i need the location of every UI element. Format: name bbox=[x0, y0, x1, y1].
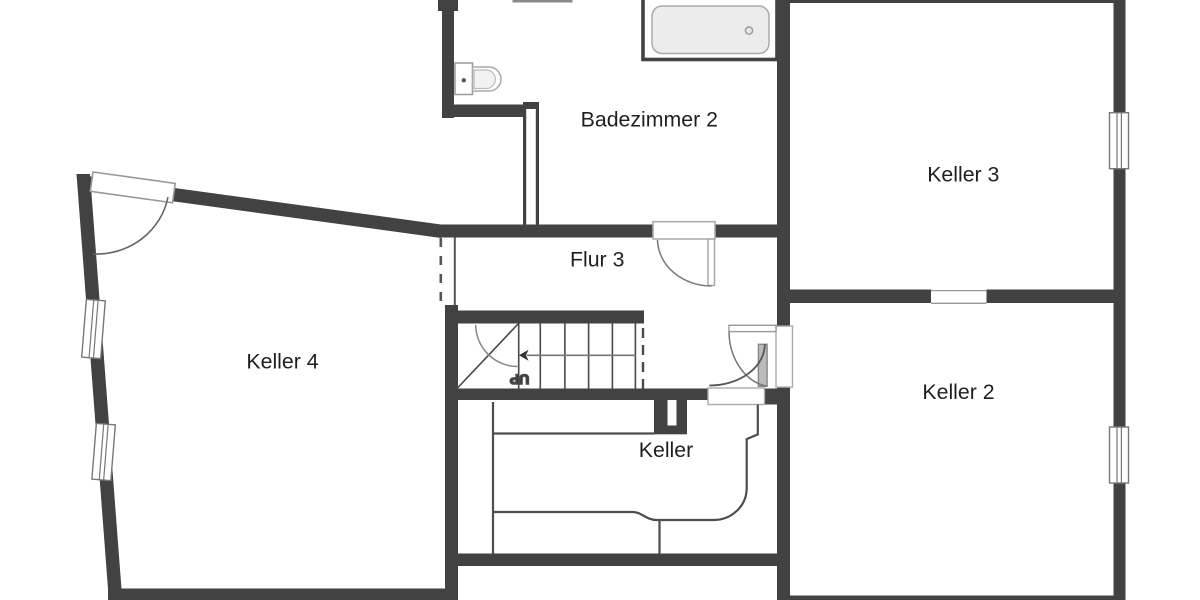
svg-text:UP: UP bbox=[510, 372, 529, 388]
svg-text:Keller: Keller bbox=[639, 438, 693, 462]
svg-text:Keller 3: Keller 3 bbox=[927, 163, 999, 187]
svg-text:Flur 3: Flur 3 bbox=[570, 248, 624, 272]
svg-text:Keller 2: Keller 2 bbox=[922, 380, 994, 404]
svg-text:Keller 4: Keller 4 bbox=[246, 350, 318, 374]
svg-text:Badezimmer 2: Badezimmer 2 bbox=[581, 108, 718, 132]
